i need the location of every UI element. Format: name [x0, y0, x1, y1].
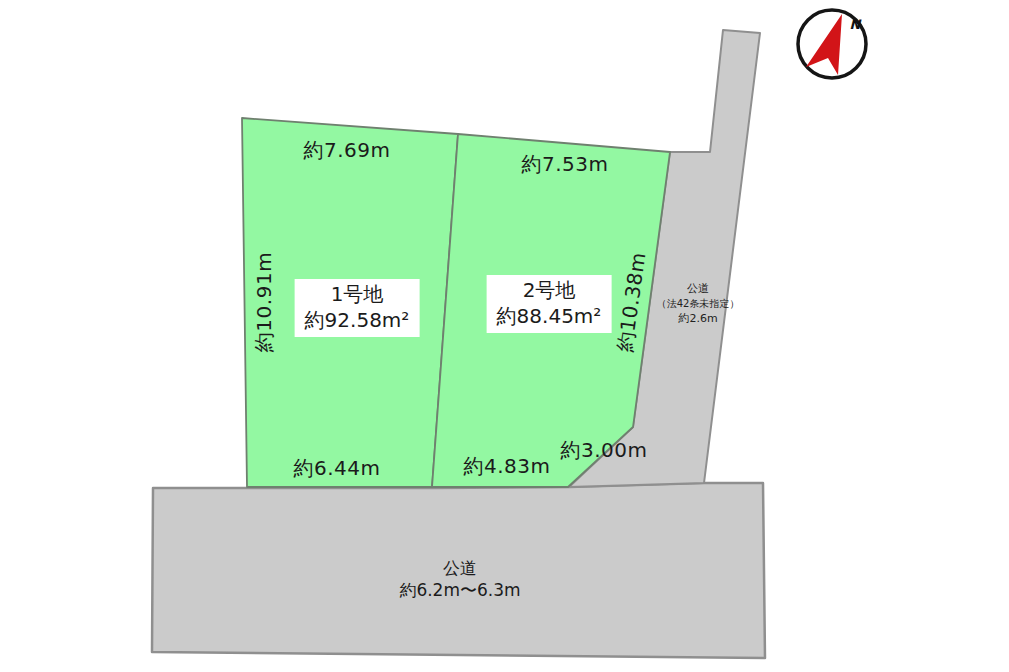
plot2-top-dimension: 約7.53m	[521, 151, 608, 178]
right-road-name: 公道	[657, 281, 740, 296]
plot2-name: 2号地	[497, 277, 602, 303]
plot1-top-dimension: 約7.69m	[303, 137, 390, 164]
plot1-label-card: 1号地 約92.58m²	[295, 279, 420, 337]
plot2-area: 約88.45m²	[497, 303, 602, 329]
compass-north-label: N	[850, 17, 861, 32]
plot2-corner-dimension: 約3.00m	[560, 437, 647, 464]
right-road-law-note: （法42条未指定）	[657, 296, 740, 311]
bottom-road-label: 公道 約6.2m〜6.3m	[399, 557, 520, 601]
plot1-bottom-dimension: 約6.44m	[293, 455, 380, 482]
right-road-label: 公道 （法42条未指定） 約2.6m	[657, 281, 740, 326]
plot2-label-card: 2号地 約88.45m²	[487, 275, 612, 333]
plot2-bottom-dimension: 約4.83m	[463, 453, 550, 480]
plot1-name: 1号地	[305, 281, 410, 307]
land-plot-diagram: 約7.69m 約7.53m 約10.91m 約10.38m 約6.44m 約4.…	[0, 0, 1009, 672]
plot1-left-dimension: 約10.91m	[251, 252, 278, 352]
right-road-width: 約2.6m	[657, 311, 740, 326]
bottom-road-name: 公道	[399, 557, 520, 579]
plot1-area: 約92.58m²	[305, 307, 410, 333]
bottom-road-width: 約6.2m〜6.3m	[399, 579, 520, 601]
